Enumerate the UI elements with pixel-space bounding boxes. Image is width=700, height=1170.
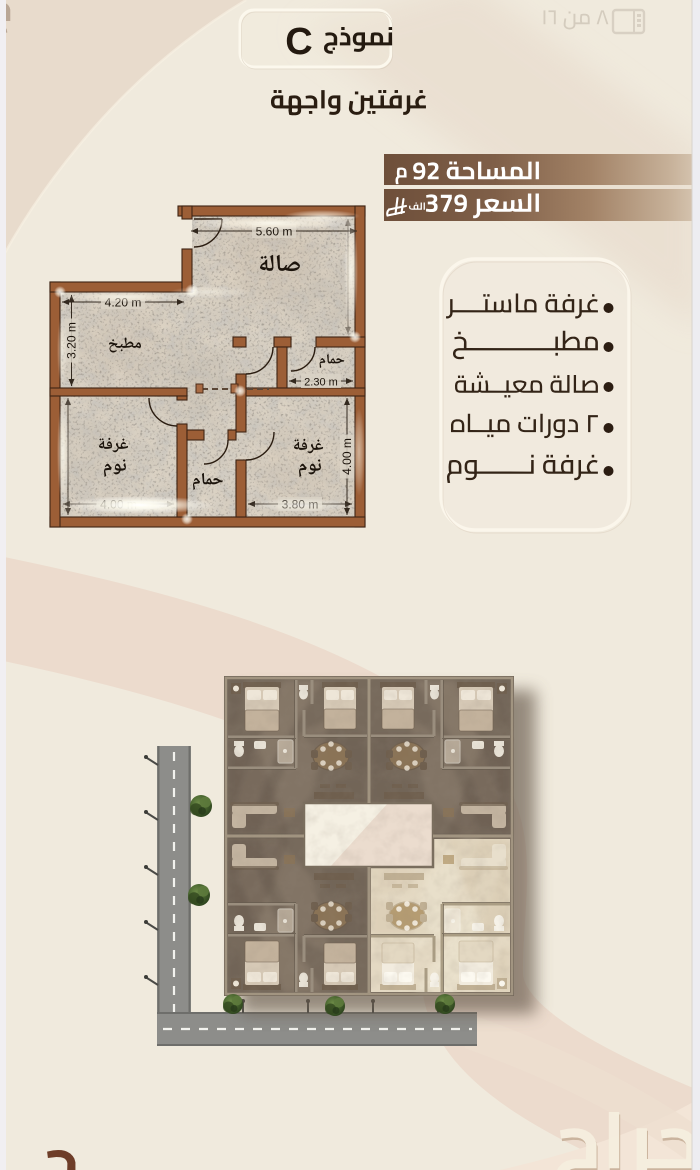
svg-text:C: C [285,21,312,63]
svg-text:4.00 m: 4.00 m [340,438,354,475]
svg-text:2.30 m: 2.30 m [304,377,338,389]
